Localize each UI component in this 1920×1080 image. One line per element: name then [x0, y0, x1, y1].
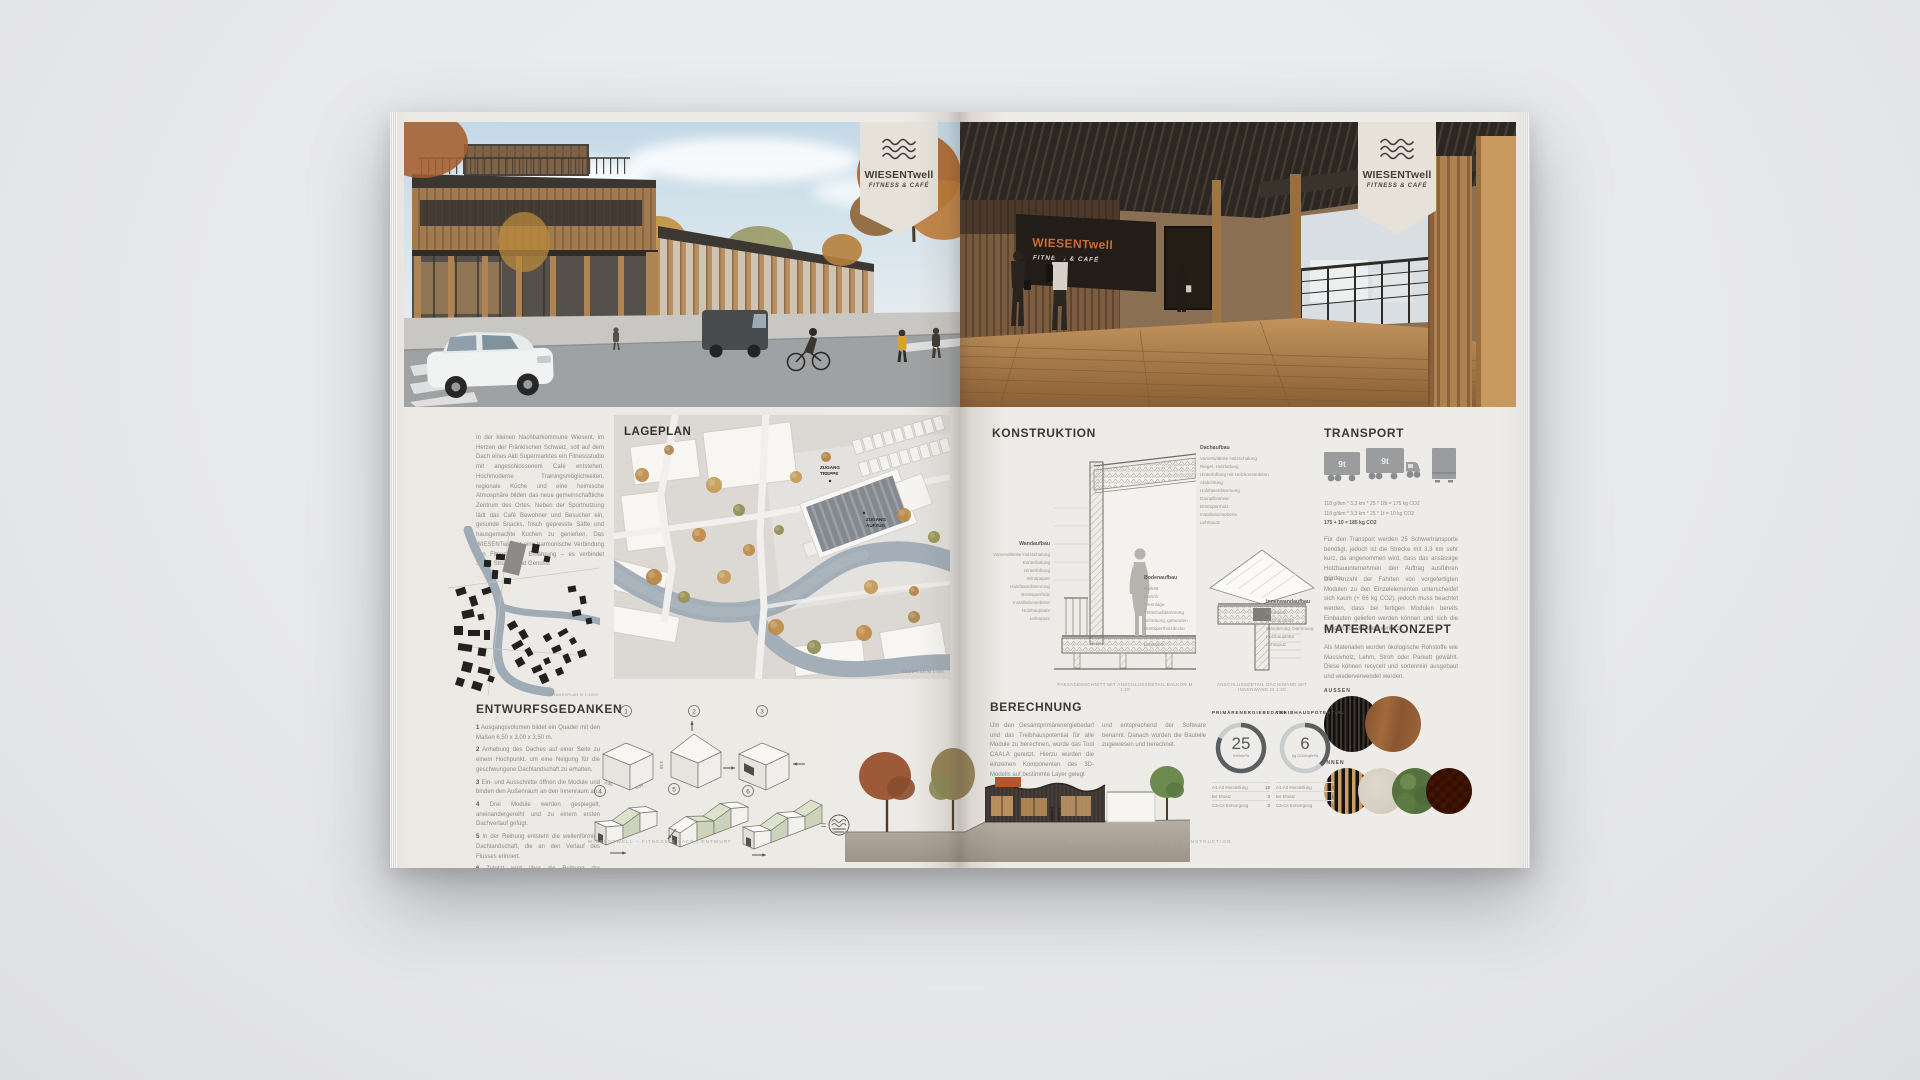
- entwurf-item: 6 Zuletzt wird über die Reihung der Auße…: [476, 865, 600, 868]
- svg-text:1: 1: [624, 708, 628, 715]
- magazine-spread: WIESENTwell FITNESS & CAFÉ In der kleine…: [390, 112, 1530, 868]
- layer-label: Konterlattung: [978, 559, 1050, 567]
- layer-label: Lehmputz: [978, 615, 1050, 623]
- page-footer-right: WIESENTWELL – FITNESS & CAFÉ | KONSTRUKT…: [1040, 839, 1260, 844]
- layer-label: Lehmputz: [1266, 609, 1320, 617]
- brand-tagline: FITNESS & CAFÉ: [869, 183, 930, 189]
- material-swatches-aussen: [1324, 696, 1421, 752]
- drawing-caption-detail: ANSCHLUSSDETAIL DACH/WAND MIT INNENWAND …: [1206, 682, 1318, 692]
- truck-icons: 9t 9t: [1324, 446, 1458, 492]
- layer-label: Holzbauplatte: [978, 607, 1050, 615]
- legend-row: C3-C4 Entsorgung1: [1276, 800, 1334, 809]
- entwurf-item: 2 Anhebung des Daches auf einer Seite zu…: [476, 746, 600, 775]
- section-heading-berechnung: BERECHNUNG: [990, 700, 1082, 714]
- figure-ground-plan: SCHWARZPLAN M 1:5000: [448, 526, 600, 698]
- layer-label: Lehmputz: [1200, 519, 1280, 527]
- site-plan-caption: LAGEPLAN M 1:500: [903, 670, 944, 674]
- module-container-icon: [1432, 448, 1456, 483]
- layer-label: Schüttung, gebunden: [1144, 617, 1200, 625]
- svg-text:5: 5: [672, 786, 676, 793]
- inner-wall-buildup-labels: Innenwandaufbau LehmputzHolzbauplatteStä…: [1266, 598, 1320, 649]
- svg-text:WIESENTwell: WIESENTwell: [1032, 235, 1113, 252]
- legend-row: A1-A3 Herstellung4: [1276, 782, 1334, 791]
- material-label-aussen: AUSSEN: [1324, 688, 1351, 694]
- layer-label: Vorverwitterte Holzschalung: [1200, 455, 1280, 463]
- brand-name: WIESENTwell: [864, 169, 933, 181]
- layer-label: Lehmputz: [1266, 641, 1320, 649]
- drawing-caption-section: FASSADENSCHNITT MIT ANSCHLUSSDETAIL BALK…: [1054, 682, 1196, 692]
- svg-text:TREPPE: TREPPE: [820, 471, 838, 476]
- svg-text:2: 2: [692, 708, 696, 715]
- swatch-parkett: [1426, 768, 1472, 814]
- site-plan-title: LAGEPLAN: [624, 426, 691, 438]
- legend-row: B4 Ersatz3: [1212, 791, 1270, 800]
- legend-row: C3-C4 Entsorgung3: [1212, 800, 1270, 809]
- elevation-building: [985, 777, 1105, 822]
- truck-with-cab-icon: 9t: [1366, 448, 1420, 479]
- brand-badge: WIESENTwell FITNESS & CAFÉ: [860, 122, 938, 234]
- co2-formulas: 118 g/tkm * 3,3 km * 25 * 18t = 175 kg C…: [1324, 500, 1464, 529]
- layer-label: Estrich: [1144, 593, 1200, 601]
- layer-label: Brettsperrholz: [1200, 503, 1280, 511]
- layer-label: Trennlage: [1144, 601, 1200, 609]
- layer-label: Hinterlüftung: [978, 567, 1050, 575]
- entwurf-item: 1 Ausgangsvolumen bildet ein Quader mit …: [476, 724, 600, 743]
- layer-label: Parkett: [1144, 585, 1200, 593]
- entwurf-items: 1 Ausgangsvolumen bildet ein Quader mit …: [476, 724, 600, 868]
- layer-label: Abhangdecke: [1144, 633, 1200, 641]
- svg-text:ZUGANG: ZUGANG: [866, 517, 886, 522]
- layer-label: Vorverwitterte Holzschalung: [978, 551, 1050, 559]
- section-heading-transport: TRANSPORT: [1324, 426, 1404, 440]
- layer-label: Brettsperrholzdecke: [1144, 625, 1200, 633]
- gauge-legend: A1-A3 Herstellung19B4 Ersatz3C3-C4 Entso…: [1212, 782, 1270, 809]
- layer-label: Holzfaserdämmung: [1200, 487, 1280, 495]
- material-swatches-innen: [1324, 768, 1472, 814]
- gauge-legend: A1-A3 Herstellung4B4 Ersatz1C3-C4 Entsor…: [1276, 782, 1334, 809]
- brand-name: WIESENTwell: [1362, 169, 1431, 181]
- wave-lines-icon: [1377, 136, 1417, 162]
- layer-label: Lehmputz: [1144, 641, 1200, 649]
- svg-text:AUFZUG: AUFZUG: [866, 523, 886, 528]
- material-paragraph: Als Materialien wurden ökologische Rohst…: [1324, 644, 1458, 683]
- entwurf-item: 4 Drei Module werden gespiegelt, aneinan…: [476, 801, 600, 830]
- brand-badge: WIESENTwell FITNESS & CAFÉ: [1358, 122, 1436, 234]
- floor-buildup-labels: Bodenaufbau ParkettEstrichTrennlageTritt…: [1144, 574, 1200, 649]
- formula-total: 175 + 10 = 185 kg CO2: [1324, 519, 1464, 529]
- page-footer-left: WIESENTWELL – FITNESS & CAFÉ | ENTWURF: [540, 839, 780, 844]
- layer-label: Installationsebene: [978, 599, 1050, 607]
- svg-text:3,50: 3,50: [659, 761, 664, 770]
- truck-trailer-icon: 9t: [1324, 452, 1360, 481]
- layer-label: Holzbauplatte: [1266, 617, 1320, 625]
- formula-line: 118 g/tkm * 3,3 km * 25 * 18t = 175 kg C…: [1324, 500, 1464, 510]
- svg-text:6: 6: [746, 788, 750, 795]
- layer-label: Abdichtung: [1200, 479, 1280, 487]
- legend-row: B4 Ersatz1: [1276, 791, 1334, 800]
- site-plan: ZUGANG TREPPE ZUGANG AUFZUG LAGEPLAN LAG…: [614, 415, 950, 679]
- layer-label: Riegel, Holzlattung: [1200, 463, 1280, 471]
- layer-label: Holzfaserdämmung: [978, 583, 1050, 591]
- section-heading-material: MATERIALKONZEPT: [1324, 622, 1451, 636]
- layer-label: Trittschalldämmung: [1144, 609, 1200, 617]
- layer-label: Brettsperrholz: [978, 591, 1050, 599]
- svg-text:9t: 9t: [1381, 456, 1389, 466]
- entwurf-text: 1 Ausgangsvolumen bildet ein Quader mit …: [476, 724, 600, 868]
- wave-lines-icon: [879, 136, 919, 162]
- roof-buildup-labels: Dachaufbau Vorverwitterte HolzschalungRi…: [1200, 444, 1280, 527]
- gauge-treibhauspotential: TREIBHAUSPOTENTIAL 6 kg CO2eq/m²a A1-A3 …: [1276, 710, 1334, 809]
- layer-label: Dampfbremse: [1200, 495, 1280, 503]
- entwurf-item: 5 In der Reihung entsteht die wellenförm…: [476, 833, 600, 862]
- layer-label: Windpapier: [978, 575, 1050, 583]
- swatch-holzfassade: [1365, 696, 1421, 752]
- legend-row: A1-A3 Herstellung19: [1212, 782, 1270, 791]
- layer-label: Ständerung, Dämmung: [1266, 625, 1320, 633]
- equals-sign: =: [821, 820, 826, 830]
- entwurf-item: 3 Ein- und Ausschnitte öffnen die Module…: [476, 779, 600, 798]
- brand-tagline: FITNESS & CAFÉ: [1367, 183, 1428, 189]
- svg-text:ZUGANG: ZUGANG: [820, 465, 840, 470]
- gauge-primaerenergie: PRIMÄRENERGIEBEDARF 25 kWh/m²a A1-A3 Her…: [1212, 710, 1270, 809]
- svg-text:9t: 9t: [1338, 459, 1346, 469]
- layer-label: Hinterlüftung mit Holzkonstruktion: [1200, 471, 1280, 479]
- section-heading-konstruktion: KONSTRUKTION: [992, 426, 1096, 440]
- svg-text:3: 3: [760, 708, 764, 715]
- layer-label: Installationsebene: [1200, 511, 1280, 519]
- formula-line: 118 g/tkm * 3,3 km * 25 * 1t = 10 kg CO2: [1324, 510, 1464, 520]
- svg-text:4: 4: [598, 788, 602, 795]
- wall-buildup-labels: Wandaufbau Vorverwitterte HolzschalungKo…: [978, 540, 1050, 623]
- layer-label: Holzbauplatte: [1266, 633, 1320, 641]
